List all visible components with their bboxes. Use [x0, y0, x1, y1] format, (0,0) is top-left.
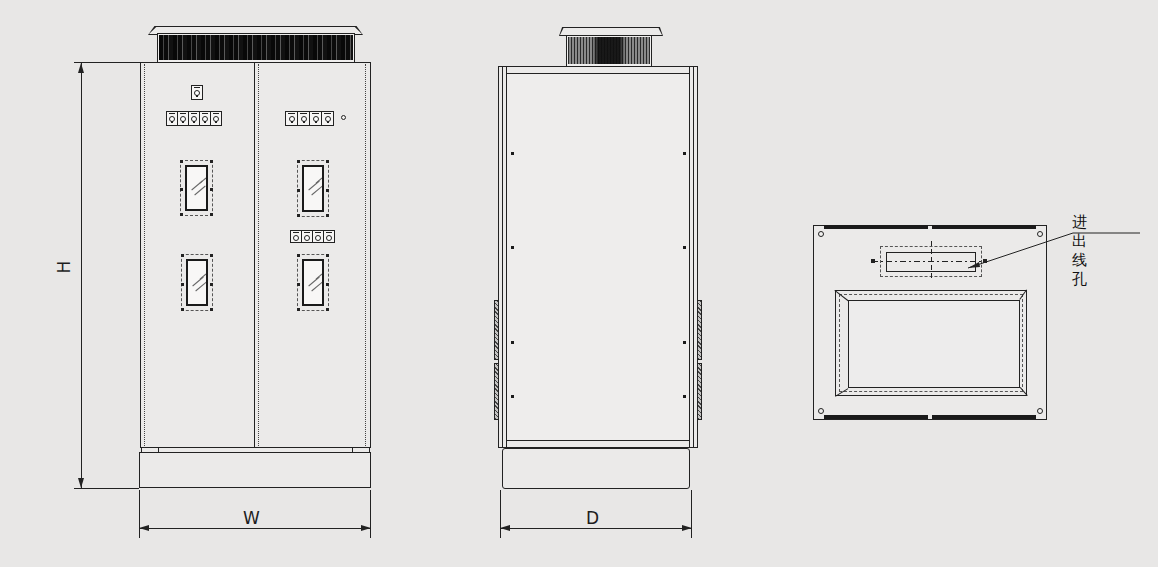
- dimension-line-depth: [500, 528, 692, 529]
- leader-line: [810, 210, 1150, 290]
- small-button-icon: [341, 115, 346, 120]
- front-plinth: [139, 452, 371, 488]
- dimension-label-depth: D: [586, 508, 599, 528]
- indicator-lamp: [321, 111, 334, 126]
- viewing-window: [181, 254, 213, 311]
- screw-icon: [683, 152, 686, 155]
- dimension-line-width: [139, 528, 371, 529]
- window-glass: [185, 165, 208, 211]
- lamp-icon: [315, 235, 321, 241]
- roof-hatch-inner: [848, 300, 1020, 388]
- side-panel: [506, 73, 690, 441]
- arrow-right-icon: [682, 525, 692, 531]
- door-gasket-line: [258, 64, 259, 446]
- screw-icon: [511, 395, 514, 398]
- cable-hole-label: 进出线孔: [1072, 213, 1088, 289]
- door-gasket-line: [365, 64, 366, 446]
- window-glass: [302, 165, 324, 212]
- window-glass: [186, 259, 208, 306]
- door-split-line: [254, 62, 255, 448]
- dimension-label-height: H: [54, 261, 74, 274]
- screw-icon: [511, 341, 514, 344]
- window-glass: [302, 259, 324, 306]
- indicator-lamp: [323, 230, 335, 243]
- screw-icon: [683, 341, 686, 344]
- corner-screw-icon: [1037, 408, 1043, 414]
- dimension-label-width: W: [243, 508, 260, 528]
- screw-icon: [683, 246, 686, 249]
- viewing-window: [297, 160, 329, 217]
- side-fan-grille: [568, 37, 650, 64]
- arrow-left-icon: [500, 525, 510, 531]
- corner-screw-icon: [818, 408, 824, 414]
- screw-icon: [683, 395, 686, 398]
- dimension-line-height: [81, 63, 82, 488]
- indicator-row-middle: [290, 230, 335, 243]
- hinge-strip: [494, 363, 499, 420]
- hinge-strip: [697, 363, 702, 420]
- viewing-window: [297, 254, 329, 311]
- hinge-strip: [494, 300, 499, 360]
- indicator-row-right: [285, 111, 334, 126]
- indicator-lamp: [191, 85, 203, 100]
- indicator-lamp-single: [191, 85, 203, 100]
- leader-arrow-icon: [968, 262, 980, 268]
- arrow-up-icon: [78, 63, 84, 73]
- lamp-icon: [293, 235, 299, 241]
- screw-icon: [511, 152, 514, 155]
- bottom-flange: [824, 415, 928, 419]
- viewing-window: [180, 160, 213, 216]
- screw-icon: [511, 246, 514, 249]
- arrow-left-icon: [139, 525, 149, 531]
- bottom-flange: [932, 415, 1036, 419]
- indicator-row-left: [166, 111, 222, 126]
- arrow-right-icon: [361, 525, 371, 531]
- lamp-icon: [304, 235, 310, 241]
- side-plinth: [502, 448, 690, 489]
- door-gasket-line: [144, 64, 145, 446]
- hinge-strip: [697, 300, 702, 360]
- arrow-down-icon: [78, 478, 84, 488]
- indicator-lamp: [210, 111, 222, 126]
- drawing-canvas: H W: [0, 0, 1158, 567]
- extension-line: [74, 488, 139, 489]
- lamp-icon: [326, 235, 332, 241]
- front-fan-grille: [159, 35, 353, 60]
